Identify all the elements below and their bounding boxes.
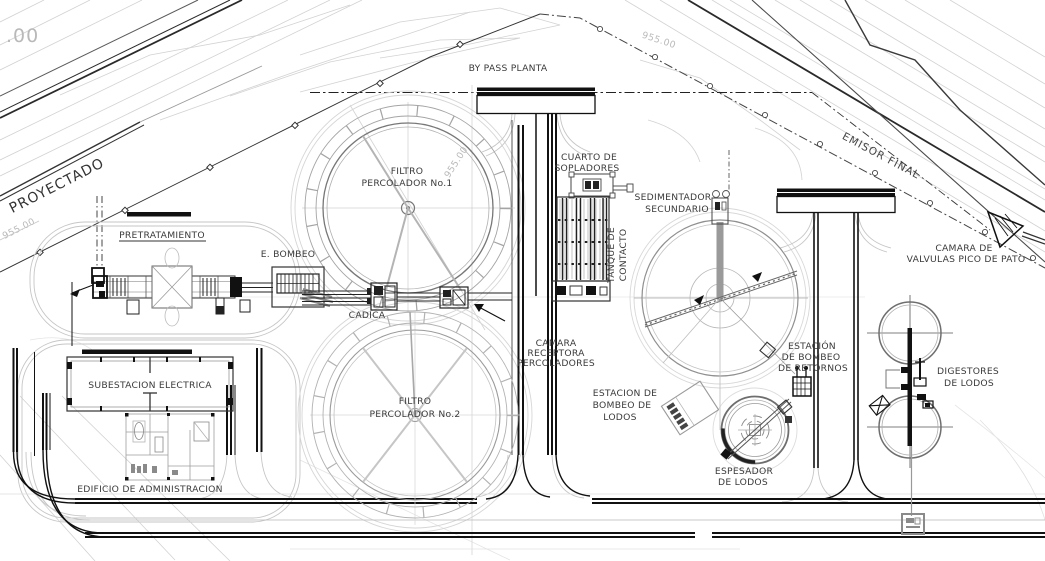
elevation-corner: .00 [6, 25, 39, 47]
label-tanque-contacto: TANQUE DE [606, 227, 617, 284]
label-cadica: CADICA [349, 310, 386, 321]
label-estacion-bombeo-lodos: ESTACION DE [593, 388, 657, 399]
label-subestacion: SUBESTACION ELECTRICA [88, 380, 212, 391]
site-plan-drawing: PROYECTADO EMISOR FINAL BY PASS PLANTA F… [0, 0, 1045, 561]
bypass-tee-structure [477, 88, 595, 297]
edificio-admin-structure [125, 413, 215, 481]
camara-receptora-structure [440, 287, 512, 321]
label-e-bombeo: E. BOMBEO [261, 249, 316, 260]
label-filtro2: FILTRO [399, 396, 432, 407]
espesador-lodos-drawing [720, 397, 792, 464]
road-band-proyectado [0, 0, 262, 201]
label-emisor-final: EMISOR FINAL [840, 130, 922, 181]
digestores-lodos-drawing [867, 295, 953, 534]
fence-line-left [0, 14, 540, 272]
label-filtro1: PERCOLADOR No.1 [362, 178, 453, 189]
label-digestores: DIGESTORES [937, 366, 999, 377]
label-digestores: DE LODOS [944, 378, 994, 389]
elevation-contour-top: 955.00 [640, 30, 677, 51]
label-proyectado: PROYECTADO [7, 155, 107, 217]
cadica-junction-structure [302, 283, 440, 310]
label-estacion-bombeo-retornos: DE BOMBEO [782, 352, 841, 363]
label-camara-receptora: PERCOLADORES [517, 358, 595, 369]
right-tee-structure [777, 189, 895, 469]
label-estacion-bombeo-lodos: BOMBEO DE [593, 400, 652, 411]
label-tanque-contacto: CONTACTO [618, 229, 629, 282]
label-by-pass: BY PASS PLANTA [469, 63, 548, 74]
label-estacion-bombeo-retornos: DE RETORNOS [778, 363, 848, 374]
label-pretratamiento: PRETRATAMIENTO [119, 230, 205, 241]
label-estacion-bombeo-lodos: LODOS [603, 412, 636, 423]
label-espesador: ESPESADOR [715, 466, 774, 477]
label-cuarto-sopladores: CUARTO DE [561, 152, 617, 163]
label-camara-valvulas: VALVULAS PICO DE PATO [907, 254, 1026, 265]
label-espesador: DE LODOS [718, 477, 768, 488]
cad-site-plan-sheet: PROYECTADO EMISOR FINAL BY PASS PLANTA F… [0, 0, 1045, 561]
label-filtro1: FILTRO [391, 166, 424, 177]
label-sedimentador: SEDIMENTADOR [635, 192, 712, 203]
filtro-percolador-1-drawing [302, 102, 515, 313]
label-camara-valvulas: CAMARA DE [935, 243, 992, 254]
label-sedimentador: SECUNDARIO [645, 204, 709, 215]
label-estacion-bombeo-retornos: ESTACIÓN [788, 340, 836, 352]
elevation-contour-filtro: 955.00 [442, 145, 470, 180]
label-cuarto-sopladores: SOPLADORES [554, 163, 619, 174]
elevation-contour-left: 955.00 [1, 216, 37, 242]
label-edificio-admin: EDIFICIO DE ADMINISTRACION [77, 484, 223, 495]
influent-pipeline-centerline [97, 196, 102, 268]
estacion-lodos-structure [661, 381, 718, 435]
label-filtro2: PERCOLADOR No.2 [370, 409, 461, 420]
